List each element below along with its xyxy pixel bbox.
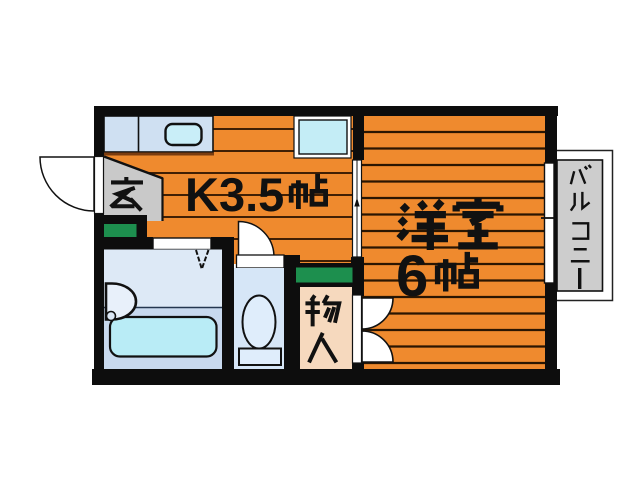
svg-text:K3.5: K3.5 — [185, 168, 284, 221]
svg-text:6: 6 — [396, 244, 428, 309]
